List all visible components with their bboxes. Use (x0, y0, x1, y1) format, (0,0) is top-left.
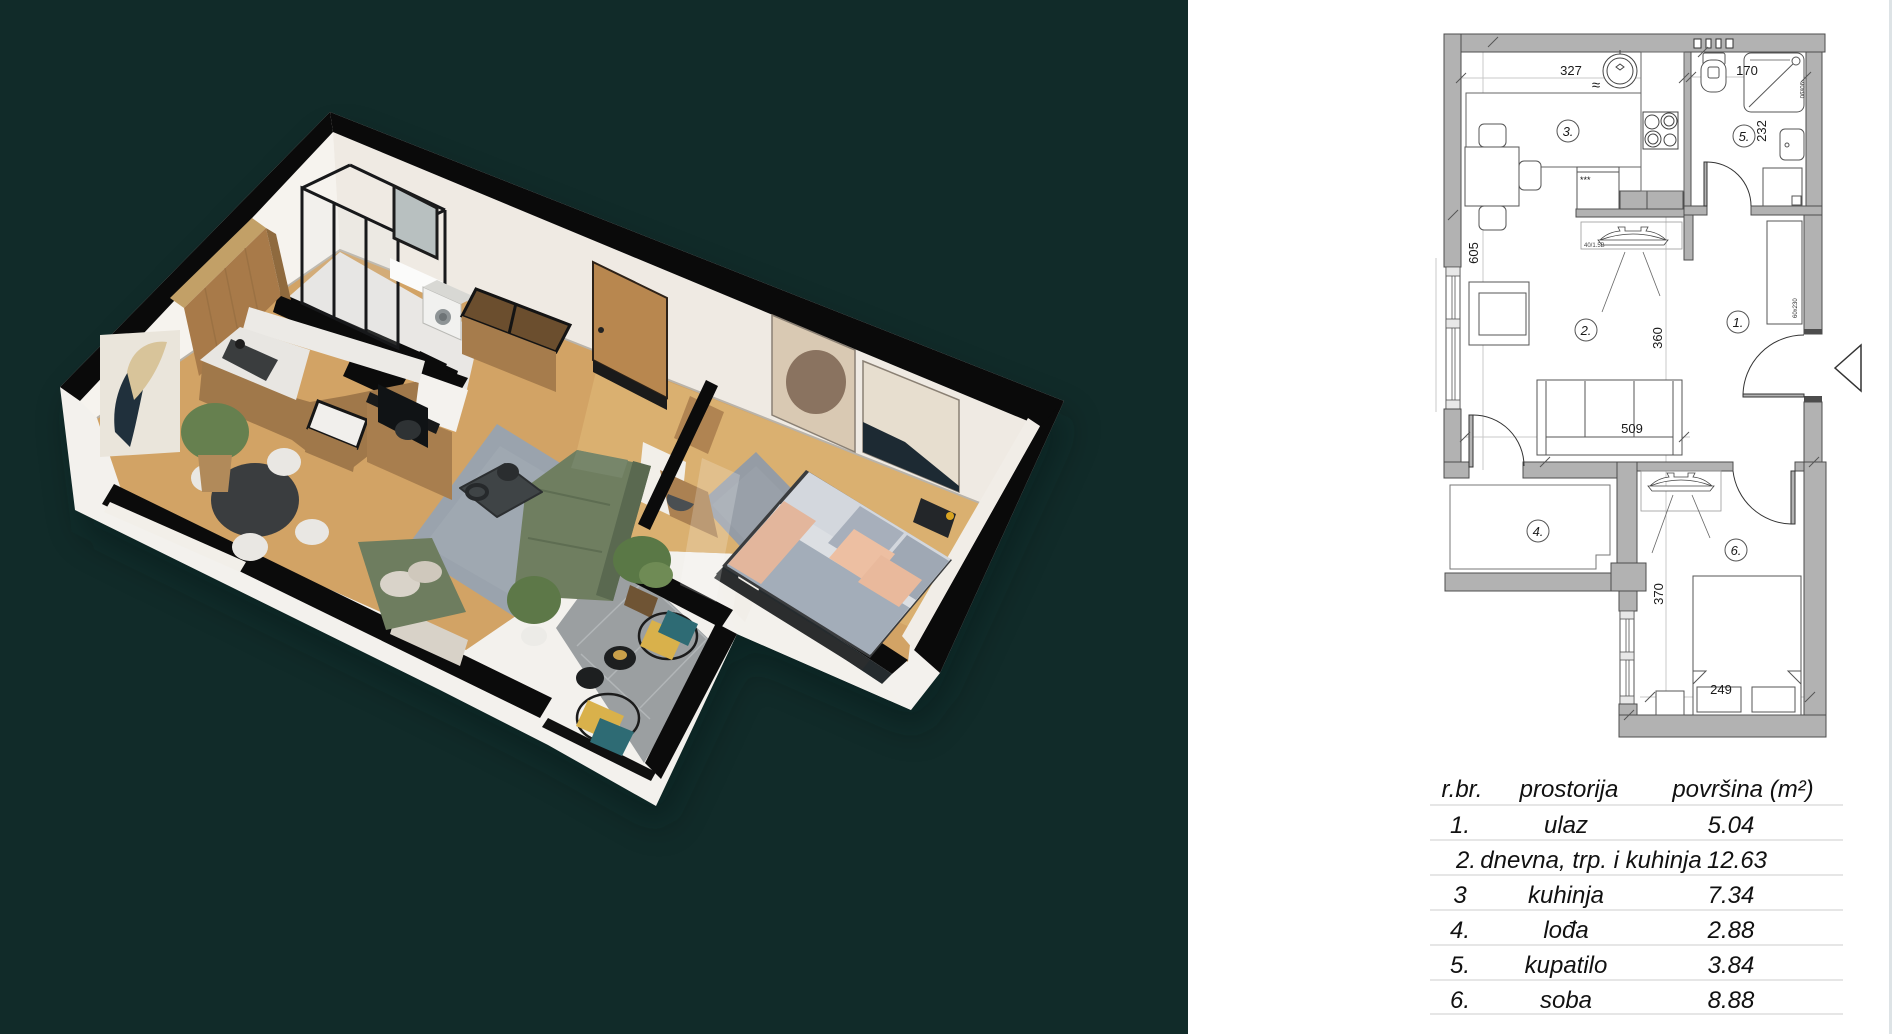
svg-text:5.04: 5.04 (1708, 812, 1755, 839)
svg-text:90x90: 90x90 (1798, 82, 1804, 99)
svg-text:360: 360 (1650, 327, 1665, 349)
svg-text:r.br.: r.br. (1442, 776, 1483, 803)
svg-text:249: 249 (1710, 682, 1732, 697)
svg-text:soba: soba (1540, 987, 1592, 1014)
svg-text:6.: 6. (1731, 543, 1742, 558)
svg-text:2.: 2. (1580, 323, 1592, 338)
svg-text:232: 232 (1754, 120, 1769, 142)
svg-text:3: 3 (1453, 882, 1467, 909)
svg-text:3.84: 3.84 (1708, 952, 1755, 979)
svg-text:605: 605 (1466, 242, 1481, 264)
svg-text:kupatilo: kupatilo (1525, 952, 1608, 979)
svg-text:površina (m²): površina (m²) (1671, 776, 1813, 803)
svg-text:8.88: 8.88 (1708, 987, 1755, 1014)
svg-text:327: 327 (1560, 63, 1582, 78)
svg-text:3.: 3. (1563, 124, 1574, 139)
svg-text:5.: 5. (1450, 952, 1470, 979)
svg-text:60x230: 60x230 (1793, 298, 1799, 318)
svg-text:≈: ≈ (1592, 77, 1600, 94)
svg-text:2.: 2. (1455, 847, 1476, 874)
svg-text:5.: 5. (1739, 129, 1750, 144)
svg-text:prostorija: prostorija (1519, 776, 1619, 803)
svg-text:dnevna, trp. i kuhinja: dnevna, trp. i kuhinja (1480, 847, 1701, 874)
svg-text:509: 509 (1621, 421, 1643, 436)
svg-text:7.34: 7.34 (1708, 882, 1755, 909)
svg-text:kuhinja: kuhinja (1528, 882, 1604, 909)
svg-text:ulaz: ulaz (1544, 812, 1588, 839)
svg-text:170: 170 (1736, 63, 1758, 78)
svg-text:4.: 4. (1450, 917, 1470, 944)
svg-text:1.: 1. (1733, 315, 1744, 330)
svg-text:12.63: 12.63 (1707, 847, 1768, 874)
svg-text:2.88: 2.88 (1707, 917, 1755, 944)
svg-text:lođa: lođa (1543, 917, 1588, 944)
svg-text:370: 370 (1651, 583, 1666, 605)
svg-text:***: *** (1580, 175, 1591, 185)
svg-text:6.: 6. (1450, 987, 1470, 1014)
svg-text:1.: 1. (1450, 812, 1470, 839)
svg-text:4.: 4. (1533, 524, 1544, 539)
svg-text:40/1.5B: 40/1.5B (1584, 243, 1605, 249)
